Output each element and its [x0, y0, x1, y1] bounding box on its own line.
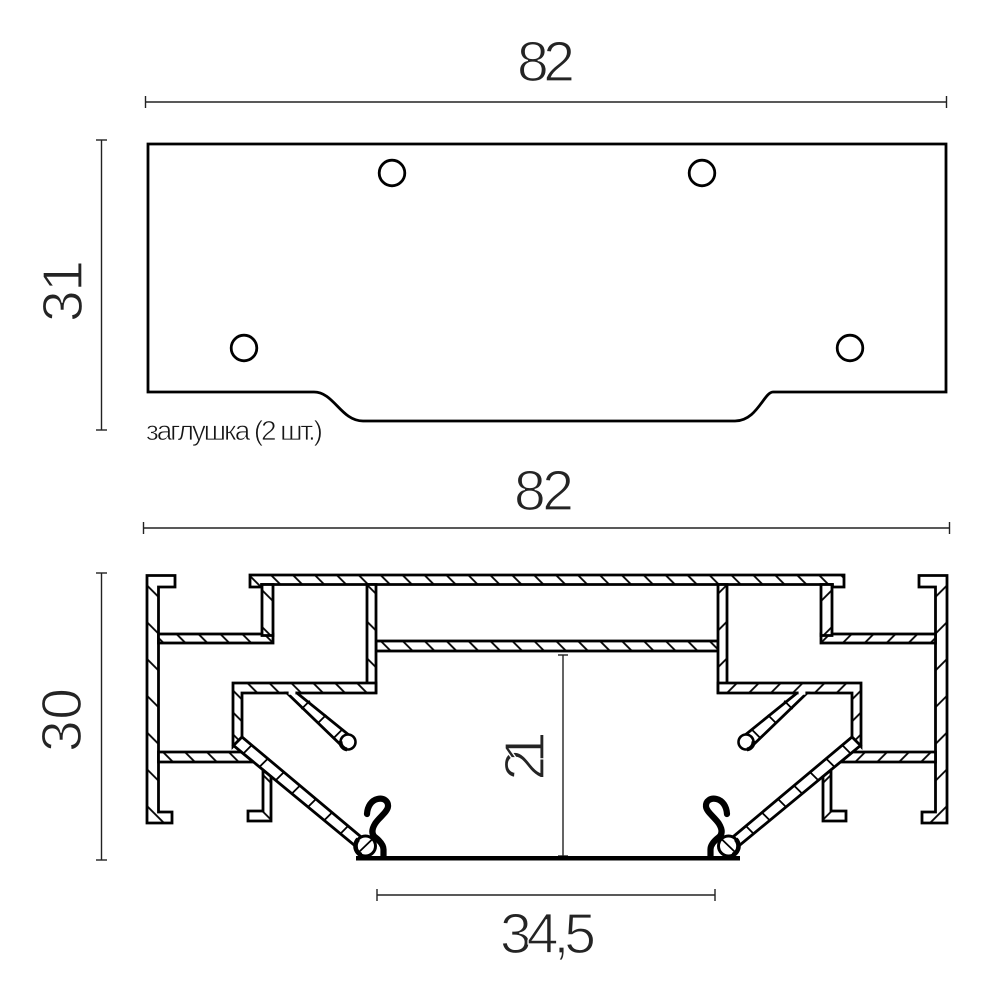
svg-text:21: 21 — [493, 732, 557, 781]
svg-text:30: 30 — [30, 688, 94, 752]
svg-text:34,5: 34,5 — [500, 902, 596, 966]
svg-text:82: 82 — [514, 459, 574, 523]
svg-text:31: 31 — [31, 260, 95, 322]
svg-text:заглушка (2 шт.): заглушка (2 шт.) — [146, 415, 323, 446]
svg-text:82: 82 — [517, 30, 575, 94]
